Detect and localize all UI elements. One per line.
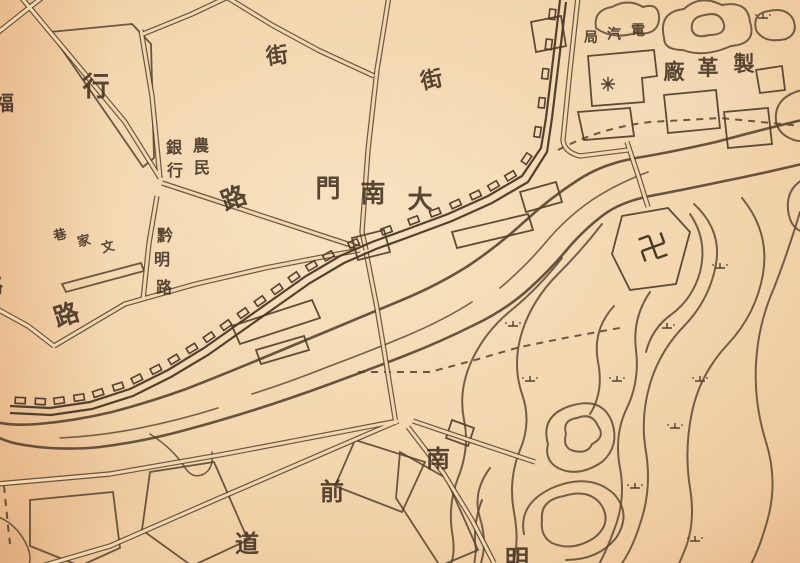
map-label: 局 [584, 30, 598, 46]
map-label: 街 [263, 42, 289, 70]
map-label: 前 [320, 478, 344, 506]
map-label: 明 [505, 546, 529, 563]
map-label: 道 [235, 530, 259, 558]
map-label: 製 [733, 52, 755, 76]
map-label: 民 [194, 159, 210, 177]
map-label: 明 [154, 251, 170, 269]
map-label: 汽 [607, 26, 621, 43]
map-label: 南 [360, 180, 385, 208]
map-canvas: 福行街街農民銀行路黔明路巷家文門南大路路局汽電廠革製南前道明 [0, 0, 800, 563]
star-icon [601, 77, 615, 91]
map-label: 南 [426, 446, 450, 473]
map-label: 行 [82, 71, 110, 102]
map-label: 路 [156, 278, 173, 297]
map-label: 行 [166, 161, 183, 180]
map-label: 福 [0, 92, 14, 115]
map-label: 銀 [166, 138, 182, 157]
map-label: 革 [698, 56, 719, 80]
map-stage: 福行街街農民銀行路黔明路巷家文門南大路路局汽電廠革製南前道明 [0, 0, 800, 563]
map-label: 電 [631, 22, 645, 39]
map-label: 門 [315, 176, 340, 203]
map-label: 大 [407, 186, 432, 214]
map-label: 農 [193, 136, 210, 155]
map-label: 廠 [664, 60, 686, 84]
map-label: 黔 [157, 226, 173, 245]
